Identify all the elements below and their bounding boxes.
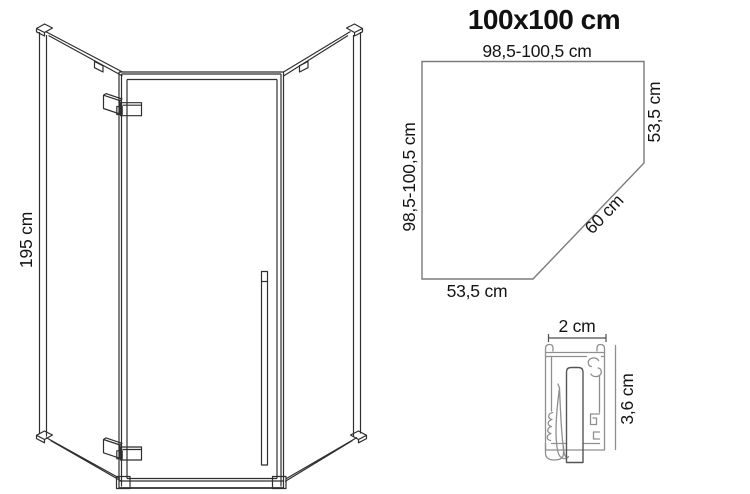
door-right-stile — [277, 72, 284, 489]
diagram-svg: 195 cm 100x100 cm 98,5-100,5 cm 98,5-100… — [0, 0, 750, 494]
diagonal-edge-label: 60 cm — [581, 190, 628, 237]
left-top-slope — [46, 32, 123, 77]
left-edge-label: 98,5-100,5 cm — [399, 122, 419, 231]
size-title: 100x100 cm — [468, 4, 620, 35]
top-view-plan: 100x100 cm 98,5-100,5 cm 98,5-100,5 cm 5… — [399, 4, 664, 301]
profile-right-steps — [591, 414, 600, 439]
front-height-label: 195 cm — [16, 212, 36, 268]
shower-dimensions-diagram: 195 cm 100x100 cm 98,5-100,5 cm 98,5-100… — [0, 0, 750, 494]
profile-top-band — [546, 353, 605, 357]
top-edge-label: 98,5-100,5 cm — [482, 41, 591, 61]
left-wall-edge — [40, 32, 47, 437]
right-edge-label: 53,5 cm — [644, 82, 664, 143]
door-handle — [262, 272, 268, 466]
shower-front-view: 195 cm — [16, 24, 367, 489]
profile-depth-label: 3,6 cm — [617, 373, 637, 424]
profile-inner-walls — [552, 357, 600, 444]
door-bottom-hinge — [104, 438, 142, 460]
left-bottom-slope — [46, 438, 122, 482]
door-top-hinge — [104, 94, 142, 116]
right-wall-edge — [354, 32, 361, 437]
door-left-stile — [119, 72, 127, 489]
profile-outline — [546, 345, 605, 451]
profile-glass-pane — [567, 368, 584, 463]
right-bottom-slope — [285, 438, 357, 482]
profile-width-label: 2 cm — [558, 316, 595, 336]
door-sill — [119, 479, 284, 482]
pentagon-outline — [422, 62, 644, 280]
left-wall-bracket — [95, 62, 104, 73]
door-header — [119, 72, 284, 80]
profile-section-detail: 2 cm 3,6 cm — [546, 316, 638, 463]
profile-screw-boss — [588, 358, 601, 377]
right-wall-bracket — [300, 62, 309, 73]
right-top-slope — [284, 32, 351, 77]
bottom-edge-label: 53,5 cm — [447, 281, 508, 301]
